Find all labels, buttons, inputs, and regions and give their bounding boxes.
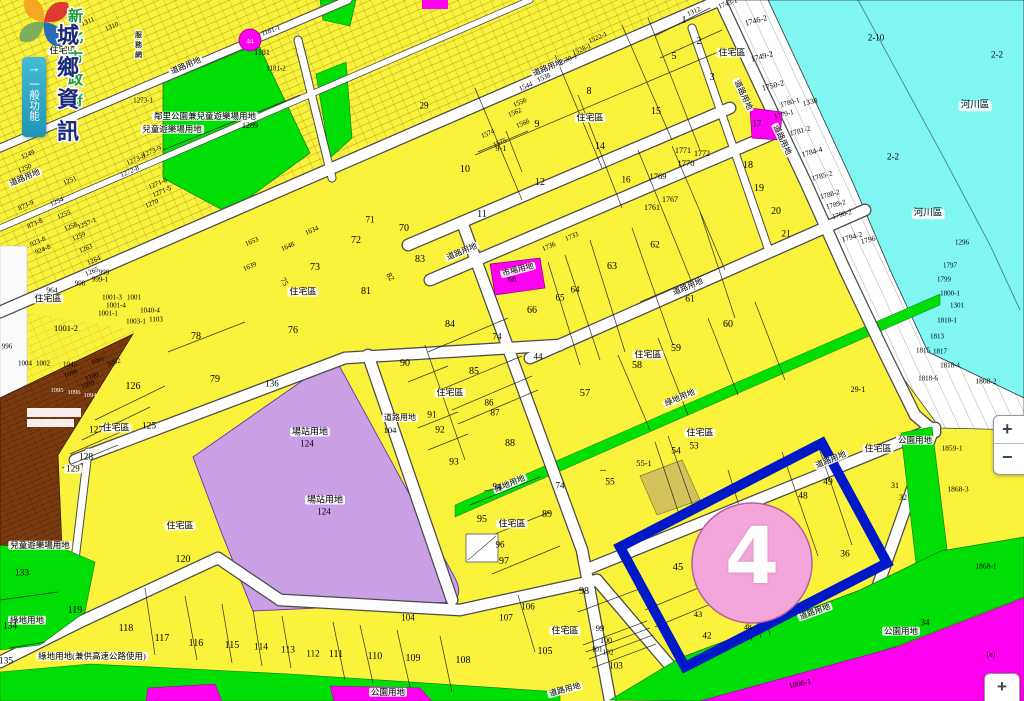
highlight-circle (692, 503, 812, 623)
site-logo: 新北市政府 城鄉資訊 服務網 (0, 0, 70, 51)
brown-label-box-2 (27, 419, 74, 427)
magenta-market-parcel (490, 258, 545, 295)
magenta-parcel-17 (750, 108, 782, 140)
logo-site-text: 城鄉資訊 (57, 18, 80, 146)
magenta-wedge-bottom-2 (330, 686, 432, 701)
map-canvas[interactable]: 住宅區住宅區住宅區住宅區住宅區住宅區住宅區住宅區住宅區住宅區住宅區住宅區住宅區道… (0, 0, 1024, 701)
arrow-right-icon: → (22, 57, 46, 75)
magenta-marker-circle (239, 29, 261, 51)
toggle-label: 一般功能 (26, 79, 42, 121)
zoom-out-button[interactable]: − (994, 444, 1024, 472)
corner-zoom-in-button[interactable]: + (984, 673, 1020, 701)
general-functions-toggle[interactable]: → 一般功能 (22, 57, 46, 137)
logo-suffix-text: 服務網 (135, 30, 142, 60)
map-sheet-edge (0, 246, 27, 408)
zoning-map (0, 0, 1024, 701)
brown-label-box-1 (27, 408, 81, 417)
zoom-control: + − (993, 415, 1024, 475)
zoom-in-button[interactable]: + (994, 416, 1024, 444)
magenta-sliver-top (422, 0, 448, 9)
